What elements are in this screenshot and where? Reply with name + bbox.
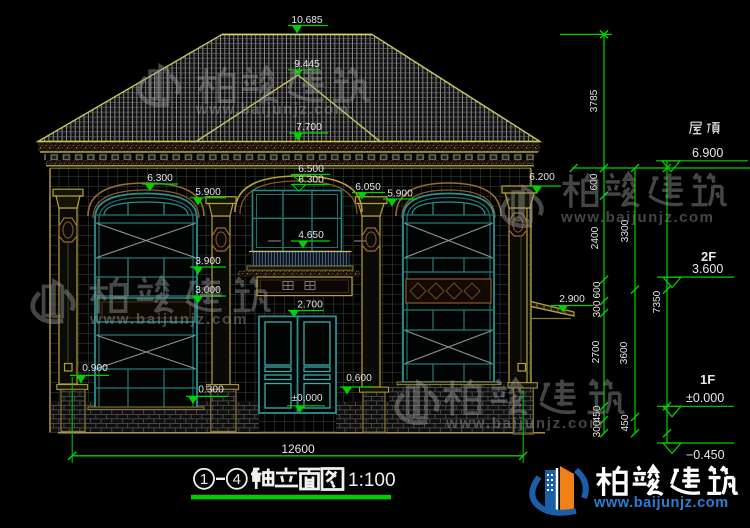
svg-text:4.650: 4.650: [298, 230, 324, 241]
svg-text:0.600: 0.600: [346, 373, 372, 384]
svg-text:300: 300: [592, 300, 603, 317]
svg-text:1F: 1F: [700, 372, 715, 387]
svg-text:www.baijunjz.com: www.baijunjz.com: [560, 209, 714, 226]
svg-text:1:100: 1:100: [348, 470, 396, 491]
svg-text:2.900: 2.900: [559, 294, 585, 305]
svg-text:7350: 7350: [652, 290, 663, 313]
svg-text:3600: 3600: [619, 341, 630, 364]
svg-text:www.baijunjz.com: www.baijunjz.com: [89, 311, 248, 328]
svg-text:0.900: 0.900: [82, 363, 108, 374]
svg-text:600: 600: [592, 281, 603, 298]
svg-text:12600: 12600: [281, 442, 315, 456]
svg-text:2400: 2400: [590, 226, 601, 249]
svg-text:±0.000: ±0.000: [686, 391, 724, 405]
svg-text:6.050: 6.050: [355, 182, 381, 193]
svg-text:6.300: 6.300: [298, 175, 324, 186]
svg-text:6.300: 6.300: [147, 173, 173, 184]
svg-text:2700: 2700: [591, 340, 602, 363]
svg-text:7.700: 7.700: [296, 122, 322, 133]
svg-text:6.900: 6.900: [692, 146, 723, 160]
svg-text:www.baijunjz.com: www.baijunjz.com: [195, 101, 349, 118]
svg-text:−0.450: −0.450: [686, 448, 725, 462]
svg-text:6.200: 6.200: [529, 172, 555, 183]
svg-text:1: 1: [200, 471, 208, 488]
svg-text:3.600: 3.600: [692, 262, 723, 276]
svg-text:9.445: 9.445: [294, 59, 320, 70]
svg-text:3785: 3785: [589, 89, 600, 112]
svg-text:www.baijunjz.com: www.baijunjz.com: [593, 495, 729, 511]
svg-text:6.500: 6.500: [298, 164, 324, 175]
svg-text:±0.000: ±0.000: [291, 393, 322, 404]
svg-text:2.700: 2.700: [297, 300, 323, 311]
svg-text:4: 4: [233, 471, 241, 488]
svg-text:5.900: 5.900: [195, 187, 221, 198]
svg-text:www.baijunjz.com: www.baijunjz.com: [445, 415, 604, 432]
svg-text:0.300: 0.300: [198, 385, 224, 396]
svg-text:3.900: 3.900: [195, 256, 221, 267]
svg-text:5.900: 5.900: [387, 189, 413, 200]
svg-text:450: 450: [620, 414, 631, 431]
svg-text:10.685: 10.685: [291, 15, 322, 26]
